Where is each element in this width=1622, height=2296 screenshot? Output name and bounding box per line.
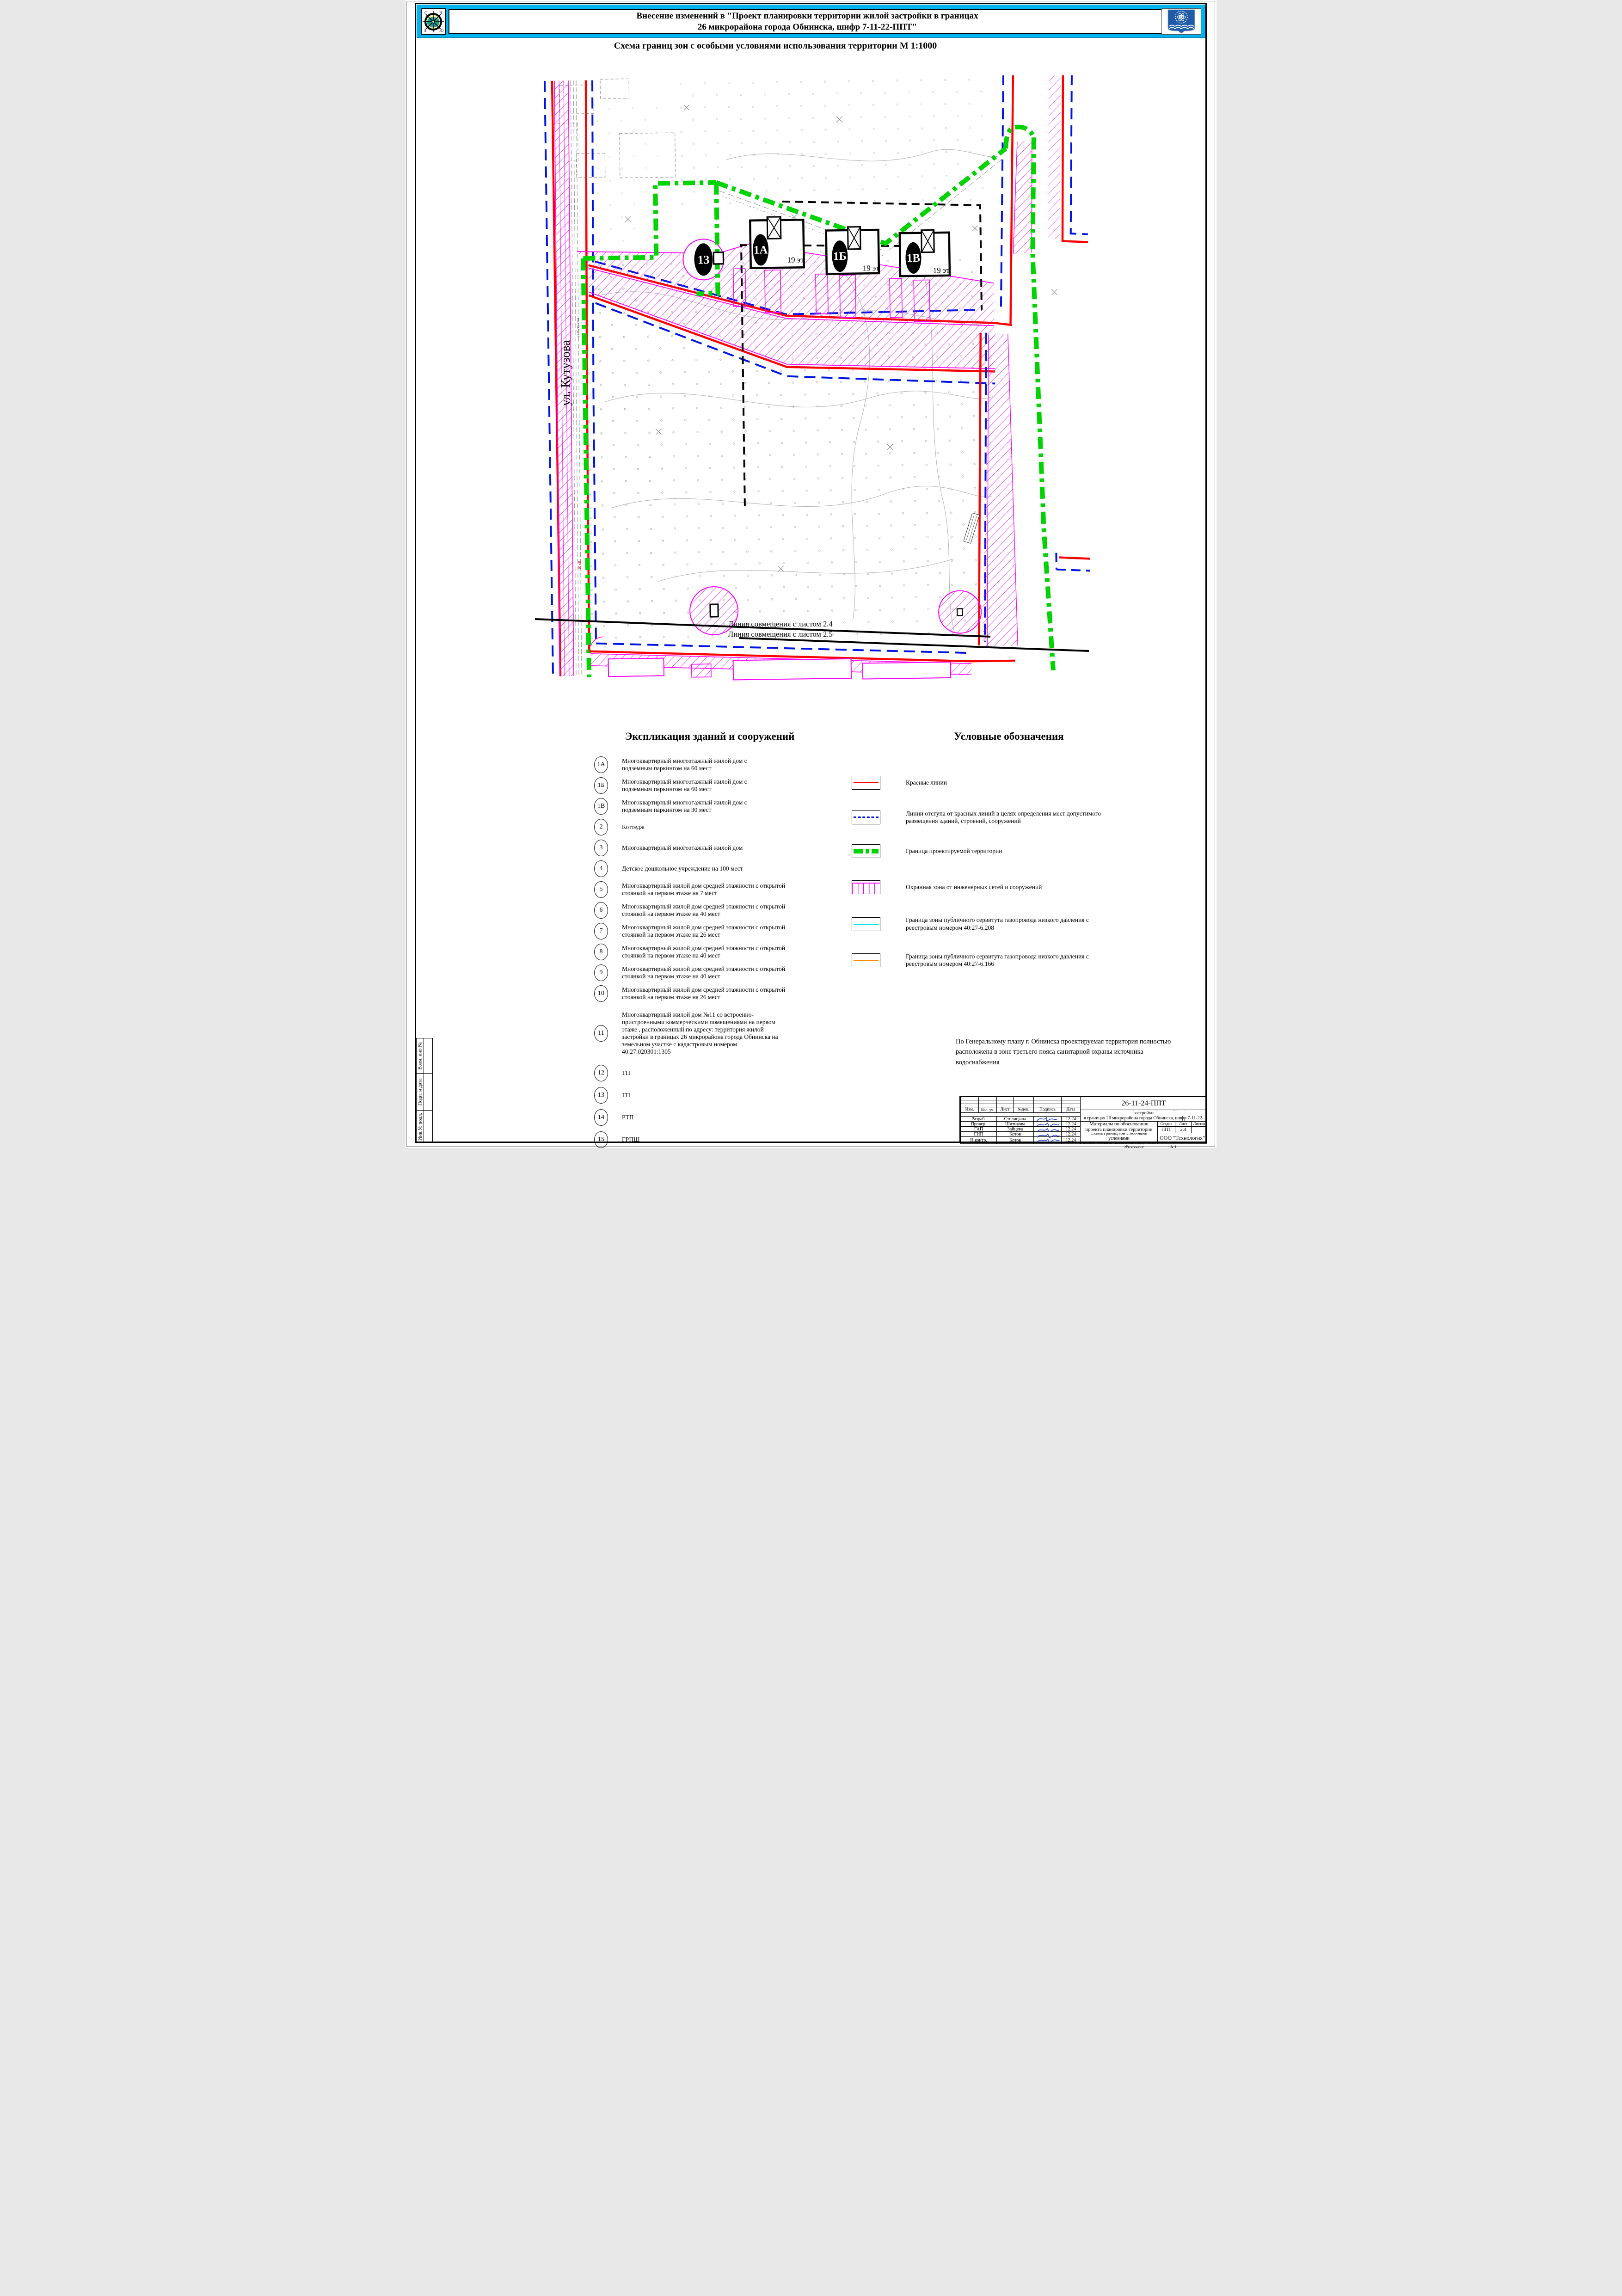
legend-label: Красные линии [906, 779, 947, 786]
item-badge: 8 [594, 944, 608, 960]
format-note: Формат А1 [1124, 1144, 1177, 1148]
legend-section: Условные обозначения Красные линии Линии… [852, 731, 1129, 968]
green-boundary-swatch [852, 844, 880, 858]
genplan-note: По Генеральному плану г. Обнинска проект… [956, 1037, 1187, 1068]
item-text: Многоквартирный жилой дом средней этажно… [622, 924, 788, 939]
item-text: РТП [622, 1114, 634, 1121]
item-badge: 13 [594, 1087, 608, 1104]
survey-base: 1А 19 эт. 1Б 19 эт. 1В 19 эт. [545, 75, 1090, 682]
building-1b-label: 1Б [833, 250, 847, 263]
explication-title: Экспликация зданий и сооружений [594, 731, 825, 743]
sheet-title-line1: Внесение изменений в "Проект планировки … [636, 11, 978, 22]
side-cell-inv: Инв.№ подл. [416, 1110, 424, 1143]
format-value: А1 [1169, 1144, 1177, 1148]
building-1b-floors: 19 эт. [863, 264, 881, 273]
materials-label: Материалы по обоснованию проекта планиро… [1080, 1121, 1158, 1133]
building-1v-label: 1В [907, 252, 921, 264]
stage-value: ППТ [1157, 1126, 1175, 1133]
item-text: Коттедж [622, 823, 645, 831]
explication-section: Экспликация зданий и сооружений 1АМногок… [594, 731, 825, 1148]
side-cell-podp: Подп. и дата [416, 1073, 424, 1111]
item-badge: 5 [594, 881, 608, 898]
role-nkontr: Н.контр. [960, 1136, 997, 1144]
item-text: Многоквартирный жилой дом средней этажно… [622, 903, 788, 918]
setback-line-bottom-right [1056, 553, 1090, 571]
item-text: Многоквартирный жилой дом средней этажно… [622, 965, 788, 980]
sheet-title-line2: 26 микрорайона города Обнинска, шифр 7-1… [698, 22, 917, 33]
protection-zone-swatch [852, 880, 880, 894]
setback-line-street-west [545, 81, 553, 675]
name-nkontr: Котов [996, 1136, 1034, 1144]
item-badge: 14 [594, 1109, 608, 1126]
red-line-bottom-right [1059, 557, 1090, 559]
building-1v: 1В 19 эт. [900, 230, 951, 276]
genplan-note-line1: По Генеральному плану г. Обнинска проект… [956, 1037, 1187, 1047]
legend-label: Граница зоны публичного сервитута газопр… [906, 916, 1109, 931]
date-nkontr: 12.24 [1061, 1136, 1081, 1144]
item-badge: 1В [594, 798, 608, 815]
item-text: Многоквартирный многоэтажный жилой дом с… [622, 778, 774, 793]
item-badge: 15 [594, 1131, 608, 1148]
sheets-value [1191, 1126, 1207, 1133]
item-badge: 10 [594, 985, 608, 1002]
item-badge: 1А [594, 756, 608, 773]
street-label: ул. Кутузова [559, 340, 572, 406]
object-13-label: 13 [697, 253, 709, 266]
legend-title: Условные обозначения [907, 731, 1111, 743]
setback-line-far-east [1069, 75, 1088, 234]
item-badge: 6 [594, 902, 608, 919]
genplan-note-line2: расположена в зоне третьего пояса санита… [956, 1047, 1187, 1068]
building-1a-floors: 19 эт. [787, 255, 805, 264]
item-badge: 12 [594, 1065, 608, 1081]
street-label-small: ул.Кутузова [575, 318, 580, 338]
item-badge: 9 [594, 964, 608, 981]
legend-label: Граница зоны публичного сервитута газопр… [906, 953, 1109, 968]
match-line-2-5-label: Линия совмещения с листом 2.5 [728, 630, 833, 638]
item-text: Многоквартирный жилой дом средней этажно… [622, 882, 788, 897]
company-name: ООО "Технология" [1157, 1133, 1207, 1144]
compass-w-label: З [424, 28, 426, 33]
far-east-protection-strip [1046, 75, 1063, 239]
compass-n-label: С [424, 11, 427, 15]
format-label: Формат [1124, 1144, 1144, 1148]
item-text: Многоквартирный многоэтажный жилой дом с… [622, 757, 774, 772]
legend-label: Охранная зона от инженерных сетей и соор… [906, 884, 1042, 891]
compass-icon: С В З Ю [421, 8, 446, 35]
item-badge: 3 [594, 840, 608, 856]
east-protection-strip-upper [1012, 140, 1033, 254]
item-text: Многоквартирный жилой дом средней этажно… [622, 986, 788, 1001]
item-text: Многоквартирный многоэтажный жилой дом с… [622, 799, 774, 814]
territory-plan-map: 1А 19 эт. 1Б 19 эт. 1В 19 эт. [535, 75, 1090, 682]
project-title: Внесение изменений в "Проект планировки … [1080, 1110, 1207, 1122]
sheet-value: 2.4 [1175, 1126, 1192, 1133]
building-1a: 1А 19 эт. [750, 216, 805, 268]
building-1v-floors: 19 эт. [933, 266, 951, 275]
red-line-swatch [852, 776, 880, 790]
east-protection-strip-lower [978, 334, 1018, 646]
item-badge: 4 [594, 860, 608, 877]
sheet-title: Внесение изменений в "Проект планировки … [449, 9, 1166, 34]
item-badge: 7 [594, 923, 608, 939]
compass-s-label: Ю [439, 28, 443, 33]
setback-line-east-upper [998, 75, 1007, 307]
building-1b: 1Б 19 эт. [826, 227, 881, 274]
power-line-label: 10 кВ [578, 561, 582, 570]
servitude-orange-swatch [852, 953, 880, 967]
obninsk-coat-of-arms-icon [1161, 8, 1201, 35]
scheme-subtitle: Схема границ зон с особыми условиями исп… [544, 41, 1007, 51]
item-badge: 2 [594, 819, 608, 835]
item-text: Многоквартирный жилой дом №11 со встроен… [622, 1011, 779, 1056]
compass-e-label: В [439, 11, 442, 15]
setback-line-swatch [852, 810, 880, 824]
item-text: ГРПШ [622, 1136, 640, 1143]
legend-label: Граница проектируемой территории [906, 847, 1002, 855]
item-text: ТП [622, 1069, 630, 1077]
header-banner: С В З Ю Внесение изменений в "Проект пла… [417, 5, 1205, 38]
servitude-cyan-swatch [852, 917, 880, 931]
doc-code: 26-11-24-ППТ [1080, 1097, 1207, 1110]
match-line-2-4-label: Линия совмещения с листом 2.4 [728, 620, 833, 628]
item-text: ТП [622, 1092, 630, 1099]
drawing-sheet: С В З Ю Внесение изменений в "Проект пла… [405, 0, 1216, 1148]
item-text: Многоквартирный многоэтажный жилой дом [622, 844, 743, 852]
title-block: Изм. Кол. уч. Лист №док. Подпись Дата Ра… [959, 1096, 1206, 1143]
sheet-name: Схема границ зон с особыми условиями исп… [1080, 1133, 1158, 1144]
item-badge: 11 [594, 1025, 608, 1042]
side-cell-vzam: Взам. инв.№ [416, 1038, 424, 1074]
item-text: Детское дошкольное учреждение на 100 мес… [622, 865, 743, 872]
building-1a-label: 1А [754, 244, 768, 256]
item-badge: 1Б [594, 777, 608, 794]
item-text: Многоквартирный жилой дом средней этажно… [622, 945, 788, 959]
red-line-far-east [1060, 75, 1088, 242]
legend-label: Линии отступа от красных линий в целях о… [906, 810, 1109, 825]
